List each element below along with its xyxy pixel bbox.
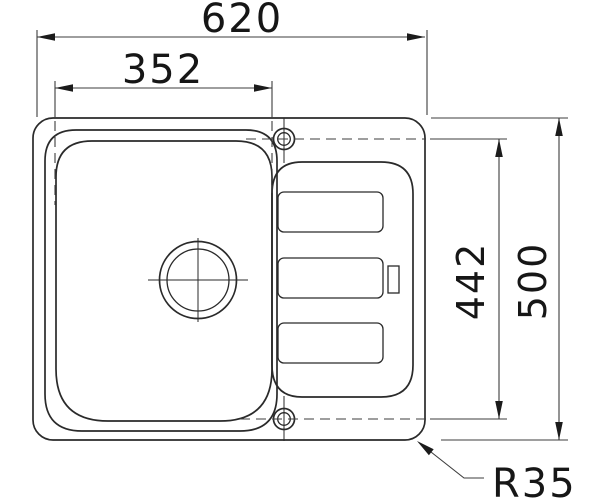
radius-callout: R35 (417, 441, 577, 500)
faucet-hole-top (246, 118, 426, 163)
drainer-groove (278, 192, 383, 232)
drainer-board (272, 162, 413, 397)
drain-hole (148, 238, 248, 322)
dim-arrowhead (37, 33, 55, 41)
dim-label-overall-depth: 500 (511, 242, 555, 321)
dim-arrowhead (254, 84, 272, 92)
dim-arrowhead (555, 422, 563, 440)
drainer-groove (278, 323, 383, 363)
dim-arrowhead (495, 401, 503, 419)
sink-technical-drawing: 620 352 442 500 R35 (0, 0, 600, 500)
faucet-hole-bottom (240, 396, 426, 441)
dim-label-hole-span: 442 (449, 242, 493, 321)
drainer-groove (278, 258, 383, 298)
dim-arrowhead (495, 139, 503, 157)
dim-arrowhead (555, 118, 563, 136)
dim-bowl-width: 352 (55, 47, 272, 205)
groove-notch (388, 266, 399, 293)
dim-hole-span: 442 (430, 139, 507, 419)
radius-label: R35 (492, 461, 577, 500)
dim-arrowhead (407, 33, 425, 41)
leader-line (431, 452, 484, 478)
leader-arrowhead (417, 441, 434, 455)
dim-label-overall-width: 620 (201, 0, 283, 42)
bowl-edge (56, 141, 272, 421)
dim-label-bowl-width: 352 (122, 47, 204, 93)
dim-overall-width: 620 (37, 0, 427, 117)
dim-arrowhead (55, 84, 73, 92)
drainer-outline (272, 162, 413, 397)
